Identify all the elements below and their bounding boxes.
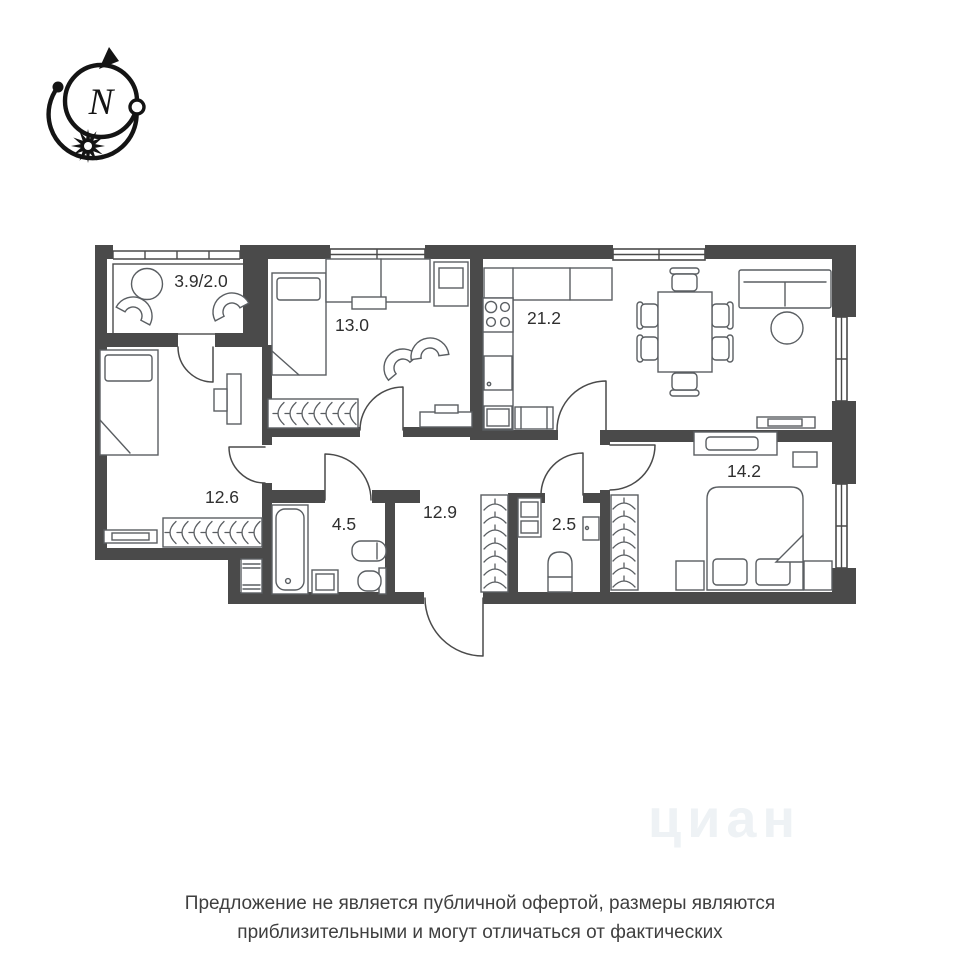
compass-north-label: N — [88, 82, 116, 123]
disclaimer-line-2: приблизительными и могут отличаться от ф… — [0, 918, 960, 947]
room-label-hallway: 12.9 — [423, 502, 457, 522]
room-label-bedroom-left: 12.6 — [205, 487, 239, 507]
room-label-bedroom-top: 13.0 — [335, 315, 369, 335]
double-bed — [707, 487, 803, 590]
room-label-bathroom: 4.5 — [332, 514, 356, 534]
round-table — [132, 269, 163, 300]
living-window — [613, 249, 705, 260]
wc-door — [541, 453, 583, 495]
shell-chair — [376, 341, 417, 380]
washer — [241, 559, 262, 593]
room-label-bedroom-right: 14.2 — [727, 461, 761, 481]
pillow — [277, 278, 320, 300]
sink — [583, 517, 599, 540]
pillow — [713, 559, 747, 585]
boiler — [518, 498, 541, 537]
wardrobe-column — [611, 495, 638, 590]
room-label-wc: 2.5 — [552, 514, 576, 534]
bedroom-right-window — [836, 484, 847, 568]
entry-door — [425, 598, 483, 656]
toilet-icon — [548, 552, 572, 592]
balcony-window — [113, 251, 240, 259]
kitchen-furniture — [483, 268, 612, 430]
compass-ring — [130, 100, 144, 114]
hanger-rail — [163, 518, 262, 547]
compass-dot — [53, 82, 64, 93]
side-table — [793, 452, 817, 467]
bedroom-top-door — [360, 387, 403, 430]
stool — [214, 389, 227, 411]
bedroom-left-furniture — [100, 350, 262, 547]
closet — [326, 259, 430, 302]
kitchen-counter-top — [484, 268, 612, 300]
pillow — [756, 559, 790, 585]
hall-wardrobe-column — [481, 495, 508, 592]
bathtub — [272, 505, 308, 594]
pillow — [105, 355, 152, 381]
shelf — [352, 297, 386, 309]
sofa — [739, 270, 831, 308]
console-table — [420, 412, 472, 427]
disclaimer: Предложение не является публичной оферто… — [0, 889, 960, 947]
watermark: циан — [648, 788, 868, 858]
coffee-table — [771, 312, 803, 344]
hanger-rail — [268, 399, 358, 428]
nightstand — [804, 561, 832, 590]
nightstand — [676, 561, 704, 590]
balcony-chair-right — [206, 286, 248, 321]
bedroom-left-door — [229, 447, 265, 483]
oven — [484, 356, 512, 390]
wc-furniture — [518, 498, 599, 592]
compass-rose: N — [49, 47, 144, 163]
living-furniture — [637, 268, 831, 428]
bathroom-door — [325, 454, 371, 500]
floorplan-page: N — [0, 0, 960, 960]
bedroom-right-furniture — [611, 432, 832, 590]
bedroom-right-door — [610, 445, 655, 490]
toilet-icon — [358, 568, 386, 594]
room-label-kitchen: 21.2 — [527, 308, 561, 328]
desk — [694, 432, 777, 455]
shell-chair — [409, 336, 449, 360]
balcony-door — [178, 347, 213, 382]
room-label-balcony: 3.9/2.0 — [174, 271, 228, 291]
tv-console — [757, 417, 815, 428]
cabinet — [312, 570, 338, 594]
radiator — [104, 530, 157, 543]
living-side-window — [836, 317, 847, 401]
stove-icon — [483, 298, 513, 332]
dining-table — [658, 292, 712, 372]
dishwasher — [515, 407, 553, 429]
sink — [352, 541, 386, 561]
washing-machine — [484, 406, 512, 429]
kitchen-door — [557, 381, 606, 430]
desk — [227, 374, 241, 424]
disclaimer-line-1: Предложение не является публичной оферто… — [0, 889, 960, 918]
